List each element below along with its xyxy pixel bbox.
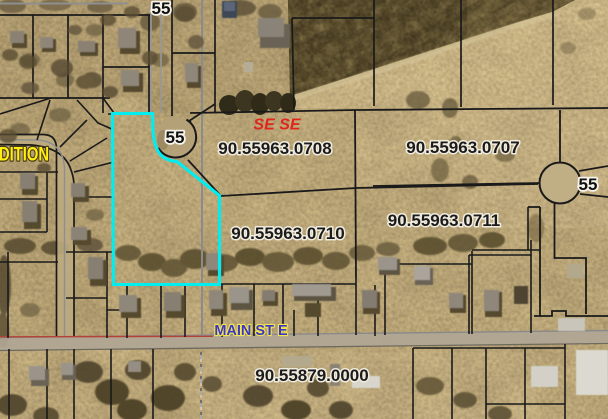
- svg-text:DITION: DITION: [0, 144, 49, 166]
- svg-text:90.55963.0711: 90.55963.0711: [388, 211, 501, 230]
- svg-text:55: 55: [152, 0, 171, 18]
- svg-text:90.55963.0710: 90.55963.0710: [231, 224, 344, 243]
- svg-text:90.55963.0708: 90.55963.0708: [218, 139, 331, 158]
- svg-text:55: 55: [579, 175, 598, 194]
- svg-text:90.55963.0707: 90.55963.0707: [406, 138, 519, 157]
- svg-text:90.55879.0000: 90.55879.0000: [255, 366, 368, 385]
- svg-text:55: 55: [166, 128, 185, 147]
- svg-text:MAIN ST E: MAIN ST E: [214, 323, 288, 339]
- svg-text:SE SE: SE SE: [253, 117, 301, 134]
